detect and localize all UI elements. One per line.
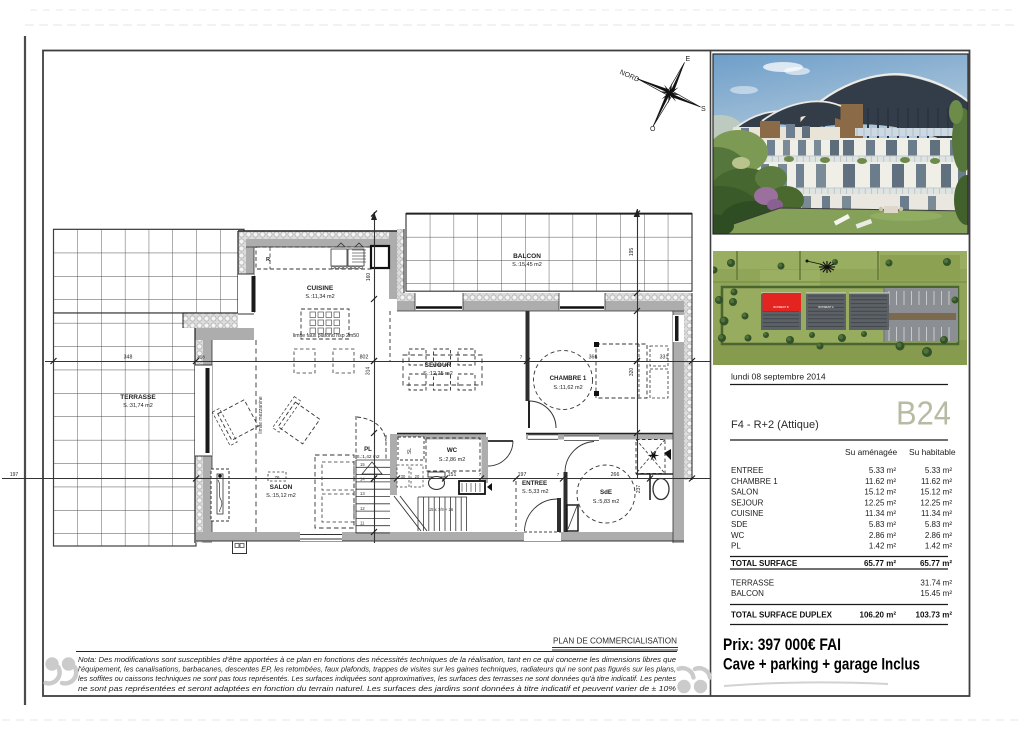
svg-text:Nota: Des modifications sont s: Nota: Des modifications sont susceptible… (78, 655, 676, 664)
svg-text:S.:11,34 m2: S.:11,34 m2 (305, 294, 334, 300)
svg-text:lundi 08 septembre 2014: lundi 08 septembre 2014 (731, 372, 826, 382)
svg-text:S.:5,33 m2: S.:5,33 m2 (522, 489, 549, 495)
svg-text:Prix: 397 000€ FAI: Prix: 397 000€ FAI (723, 636, 841, 654)
svg-text:266: 266 (611, 472, 620, 478)
svg-text:7: 7 (479, 472, 482, 477)
svg-text:PLAN DE COMMERCIALISATION: PLAN DE COMMERCIALISATION (553, 636, 677, 646)
svg-text:S.:15,12 m2: S.:15,12 m2 (266, 493, 296, 499)
svg-text:SdE: SdE (600, 489, 612, 496)
svg-text:15.12 m²: 15.12 m² (864, 488, 896, 497)
svg-text:7: 7 (520, 355, 523, 360)
svg-text:WC: WC (447, 447, 458, 454)
svg-text:1.42 m²: 1.42 m² (925, 542, 952, 551)
svg-text:11.34 m²: 11.34 m² (865, 509, 896, 518)
svg-text:PL: PL (731, 542, 741, 551)
svg-text:76: 76 (274, 475, 280, 480)
svg-text:802: 802 (360, 355, 369, 361)
svg-text:151: 151 (448, 472, 457, 478)
svg-text:11: 11 (360, 520, 365, 525)
svg-text:15 x 7/8 + 26: 15 x 7/8 + 26 (429, 507, 454, 512)
svg-text:2.86 m²: 2.86 m² (869, 531, 896, 540)
svg-text:S.:15,45 m2: S.:15,45 m2 (512, 262, 542, 268)
svg-text:S.:12,25 m2: S.:12,25 m2 (423, 371, 453, 377)
svg-text:S.:31,74 m2: S.:31,74 m2 (123, 403, 153, 409)
svg-text:CHAMBRE 1: CHAMBRE 1 (550, 375, 587, 382)
svg-text:TERRASSE: TERRASSE (120, 394, 156, 401)
svg-text:S: S (701, 106, 706, 113)
svg-text:BALCON: BALCON (513, 253, 541, 260)
svg-text:WC: WC (731, 531, 745, 540)
svg-text:S.:1,42 m2: S.:1,42 m2 (356, 454, 380, 460)
svg-text:12: 12 (360, 506, 365, 511)
svg-text:limite mezzanine: limite mezzanine (258, 396, 264, 433)
svg-text:Cave + parking + garage Inclus: Cave + parking + garage Inclus (723, 656, 920, 674)
svg-text:BATIMENT A: BATIMENT A (818, 305, 833, 309)
svg-text:O: O (650, 126, 656, 133)
svg-text:5.33 m²: 5.33 m² (869, 466, 896, 475)
svg-text:BALCON: BALCON (731, 589, 764, 598)
svg-text:F4 - R+2 (Attique): F4 - R+2 (Attique) (731, 419, 819, 431)
svg-text:B24: B24 (896, 396, 951, 433)
svg-text:418: 418 (197, 355, 205, 360)
svg-text:TOTAL SURFACE: TOTAL SURFACE (731, 559, 798, 568)
svg-text:SEJOUR: SEJOUR (425, 362, 452, 369)
svg-text:SL: SL (407, 448, 413, 454)
svg-text:5.83 m²: 5.83 m² (869, 520, 896, 529)
svg-text:1.42 m²: 1.42 m² (869, 542, 896, 551)
svg-text:TERRASSE: TERRASSE (731, 579, 774, 588)
svg-text:S.:5,83 m2: S.:5,83 m2 (593, 499, 620, 505)
svg-text:2.86 m²: 2.86 m² (925, 531, 952, 540)
svg-text:les soffites ou caissons techn: les soffites ou caissons techniques ne s… (78, 674, 676, 683)
svg-text:E: E (686, 56, 691, 63)
svg-text:195: 195 (629, 248, 635, 257)
svg-text:348: 348 (124, 355, 133, 361)
svg-text:15: 15 (360, 462, 365, 467)
svg-text:Su aménagée: Su aménagée (845, 447, 897, 457)
svg-text:14: 14 (360, 477, 365, 482)
svg-text:197: 197 (10, 472, 19, 478)
svg-text:12.25 m²: 12.25 m² (864, 498, 896, 507)
svg-text:11.62 m²: 11.62 m² (921, 477, 952, 486)
svg-text:15.45 m²: 15.45 m² (920, 589, 952, 598)
svg-text:15.12 m²: 15.12 m² (920, 488, 952, 497)
svg-text:13: 13 (360, 491, 365, 496)
svg-text:S.:2,86 m2: S.:2,86 m2 (439, 457, 466, 463)
svg-text:CHAMBRE 1: CHAMBRE 1 (731, 477, 778, 486)
svg-text:65.77 m²: 65.77 m² (864, 559, 896, 568)
svg-text:Su habitable: Su habitable (909, 447, 956, 457)
svg-text:11.62 m²: 11.62 m² (865, 477, 896, 486)
svg-text:R: R (266, 257, 270, 263)
svg-text:S.:11,62 m2: S.:11,62 m2 (553, 385, 582, 391)
svg-text:7: 7 (557, 472, 560, 477)
svg-text:160: 160 (366, 273, 372, 282)
svg-text:366: 366 (589, 355, 598, 361)
svg-text:SDE: SDE (731, 520, 747, 529)
svg-text:l'équipement, les canalisation: l'équipement, les canalisations, barbaca… (78, 665, 676, 674)
svg-text:ENTREE: ENTREE (731, 466, 763, 475)
svg-text:237: 237 (636, 485, 642, 494)
svg-text:CUISINE: CUISINE (731, 509, 763, 518)
svg-text:TOTAL SURFACE DUPLEX: TOTAL SURFACE DUPLEX (731, 611, 833, 620)
svg-text:11.34 m²: 11.34 m² (921, 509, 952, 518)
svg-text:12.25 m²: 12.25 m² (920, 498, 952, 507)
svg-text:5.83 m²: 5.83 m² (925, 520, 952, 529)
svg-text:ENTREE: ENTREE (522, 480, 547, 487)
svg-text:limite faux plafond hsp 2m50: limite faux plafond hsp 2m50 (293, 333, 359, 339)
svg-text:5.33 m²: 5.33 m² (925, 466, 952, 475)
svg-text:331: 331 (660, 355, 669, 361)
svg-text:SALON: SALON (731, 488, 758, 497)
svg-text:SALON: SALON (270, 484, 293, 491)
svg-text:314: 314 (366, 367, 372, 376)
svg-text:31.74 m²: 31.74 m² (920, 579, 952, 588)
svg-text:PL: PL (364, 447, 372, 453)
svg-text:320: 320 (629, 368, 635, 377)
svg-text:CUISINE: CUISINE (307, 285, 334, 292)
svg-text:197: 197 (518, 472, 527, 478)
svg-text:103.73 m²: 103.73 m² (916, 611, 953, 620)
svg-text:65.77 m²: 65.77 m² (920, 559, 952, 568)
svg-text:BATIMENT B: BATIMENT B (773, 305, 789, 309)
svg-text:106.20 m²: 106.20 m² (860, 611, 897, 620)
svg-text:ne sont pas représentées et se: ne sont pas représentées et seront adapt… (78, 684, 677, 693)
svg-text:SEJOUR: SEJOUR (731, 498, 764, 507)
